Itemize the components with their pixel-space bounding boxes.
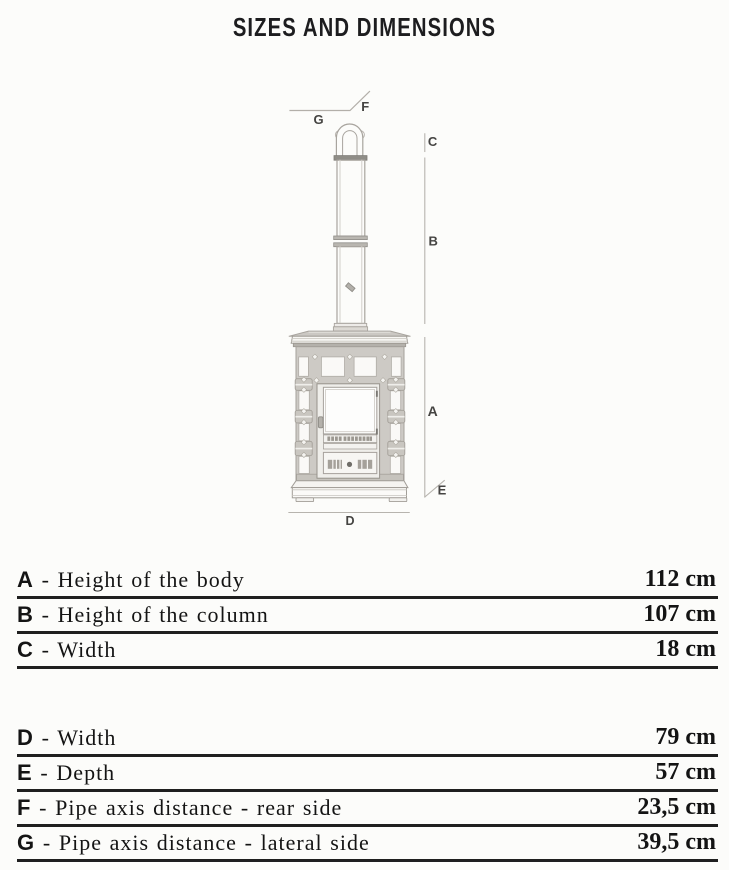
- svg-text:A: A: [428, 403, 438, 419]
- svg-text:B: B: [429, 233, 438, 248]
- svg-text:D: D: [345, 514, 354, 528]
- svg-text:F: F: [361, 99, 369, 114]
- svg-text:C: C: [428, 134, 438, 149]
- svg-text:G: G: [313, 112, 323, 127]
- svg-text:E: E: [438, 482, 447, 497]
